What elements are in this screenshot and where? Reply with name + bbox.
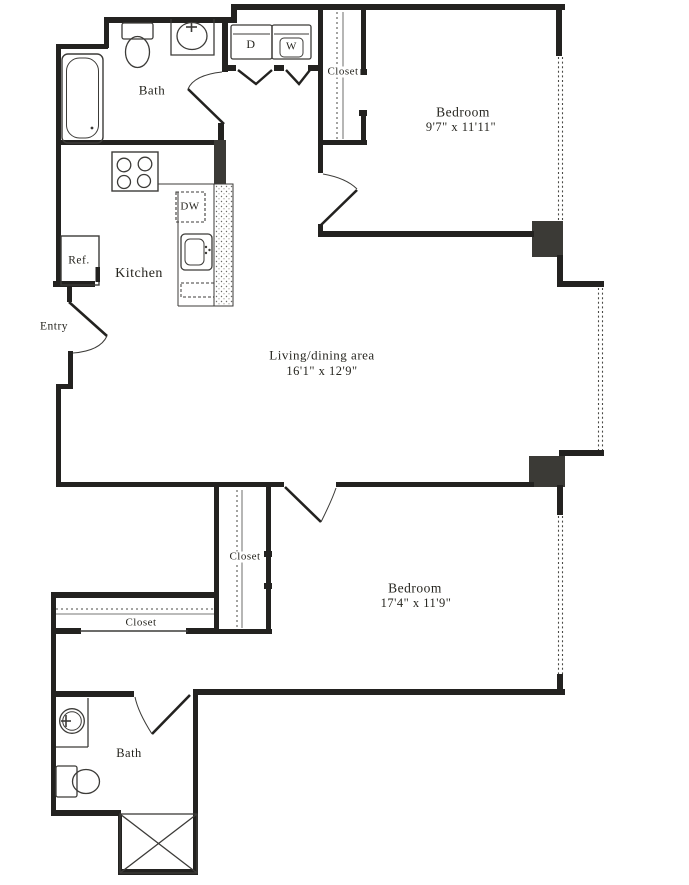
bath-bottom-door xyxy=(135,695,190,734)
sink-top-icon xyxy=(171,19,214,55)
room-label-bedroom-bottom: Bedroom xyxy=(388,581,442,595)
room-dimensions-living: 16'1" x 12'9" xyxy=(286,365,357,378)
entry-door xyxy=(69,302,107,353)
kitchen-sink-icon xyxy=(181,234,212,270)
room-dimensions-bedroom-top: 9'7" x 11'11" xyxy=(426,121,496,134)
room-label-closet-mid: Closet xyxy=(227,552,262,563)
bedroom-bottom-door xyxy=(285,487,336,522)
bedroom-top-door xyxy=(320,174,357,226)
room-label-entry: Entry xyxy=(40,321,68,333)
refrigerator-label: Ref. xyxy=(68,255,89,267)
laundry-bifold-doors xyxy=(238,70,310,84)
dishwasher-label: DW xyxy=(180,202,199,213)
bath-top-door xyxy=(188,72,224,124)
washer-label: W xyxy=(286,42,297,53)
shower-icon xyxy=(120,814,197,873)
exterior-walls xyxy=(51,4,604,875)
room-label-bedroom-top: Bedroom xyxy=(436,105,490,119)
bathtub-icon xyxy=(62,54,103,143)
floor-plan: Bath D W Closet Bedroom 9'7" x 11'11" Ki… xyxy=(0,0,689,885)
sink-bottom-icon xyxy=(56,698,88,747)
dryer-label: D xyxy=(246,38,255,50)
room-label-closet-bottom: Closet xyxy=(123,618,158,629)
closet-bottom-rod xyxy=(56,609,214,614)
room-label-kitchen: Kitchen xyxy=(115,267,163,281)
toilet-top-icon xyxy=(122,23,153,68)
room-label-bath-top: Bath xyxy=(139,84,166,97)
stove-icon xyxy=(112,152,158,191)
toilet-bottom-icon xyxy=(56,766,100,797)
room-dimensions-bedroom-bottom: 17'4" x 11'9" xyxy=(381,597,452,610)
room-label-bath-bottom: Bath xyxy=(116,747,142,760)
room-label-living: Living/dining area xyxy=(269,349,374,362)
floor-plan-drawing xyxy=(0,0,689,885)
windows xyxy=(559,57,603,674)
room-label-closet-top: Closet xyxy=(325,67,360,78)
